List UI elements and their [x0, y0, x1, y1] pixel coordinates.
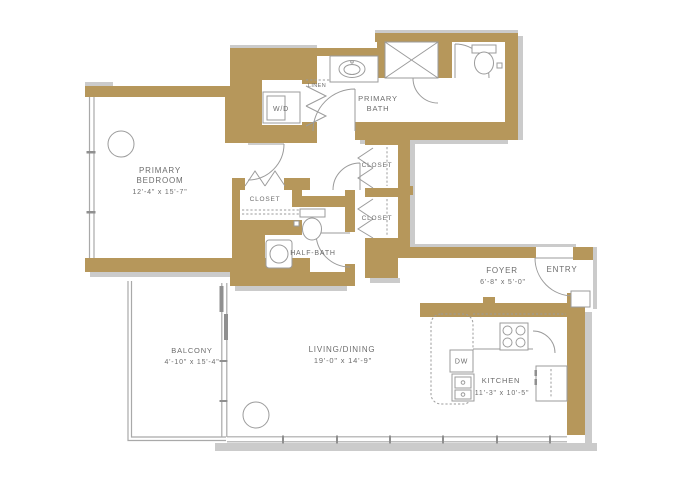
shadow [85, 82, 113, 86]
bedroom-closet-label: CLOSET [250, 196, 281, 203]
wall-bedroom-top [85, 86, 238, 97]
window-mullion [87, 151, 96, 154]
walls [85, 33, 593, 435]
wall-kitchen-right [567, 293, 585, 435]
kitchen-sink-basin [455, 377, 471, 388]
halfbath-paper-holder [294, 221, 299, 226]
shadow [375, 30, 518, 33]
shadow [235, 286, 347, 291]
column [108, 131, 134, 157]
wall-hall-foyer [365, 250, 398, 278]
wall-below-closet [232, 220, 302, 235]
primary-bedroom-label-2: BEDROOM [137, 176, 184, 185]
bath-sink-basin [344, 65, 360, 75]
window-mullion [220, 360, 228, 362]
refrigerator-handle [535, 370, 538, 376]
shower-door-swing [413, 78, 438, 103]
wall-bath-right [505, 33, 518, 140]
primary-bath-label-1: PRIMARY [358, 94, 398, 103]
kitchen-dims: 11'-3" x 10'-5" [475, 390, 530, 397]
wall-entry-stub [573, 247, 593, 260]
foyer-label: FOYER [486, 266, 518, 275]
shadow [370, 278, 400, 283]
living-dining-dims: 19'-0" x 14'-9" [314, 356, 372, 365]
window-mullion [442, 436, 444, 444]
primary-bedroom-dims: 12'-4" x 15'-7" [132, 189, 187, 196]
shadow [398, 244, 576, 247]
entry-label: ENTRY [547, 265, 578, 274]
bath-door-swing [313, 89, 355, 131]
halfbath-sink-basin [270, 245, 288, 263]
balcony-label: BALCONY [171, 346, 212, 355]
lower-closet-label: CLOSET [362, 215, 393, 222]
wall-halfbath-left [232, 235, 265, 272]
living-dining-label: LIVING/DINING [309, 345, 376, 354]
shadow [230, 45, 317, 48]
bath-sink-faucet [351, 61, 354, 64]
halfbath-toilet-tank [300, 209, 325, 217]
entry-niche [571, 291, 590, 307]
wc-toilet-bowl [475, 52, 494, 74]
wall-halfbath-top [302, 196, 345, 207]
wall-linen-top [305, 48, 385, 56]
half-bath-label: HALF-BATH [290, 250, 336, 257]
balcony-door-panel [220, 286, 224, 312]
halfbath-toilet-bowl [303, 218, 322, 240]
floor-plan: PRIMARY BEDROOM 12'-4" x 15'-7" PRIMARY … [0, 0, 699, 491]
balcony-dims: 4'-10" x 15'-4" [164, 359, 219, 366]
refrigerator-handle [535, 379, 538, 385]
foyer-dims: 6'-8" x 5'-0" [480, 279, 526, 286]
kitchen-label: KITCHEN [482, 376, 521, 385]
bedroom-door-swing [248, 144, 284, 180]
window-mullion [336, 436, 338, 444]
window-mullion [220, 400, 228, 402]
window-mullion [87, 211, 96, 214]
wall-kitchen-tab [483, 297, 495, 303]
shadow [593, 247, 597, 309]
linen-label: LINEN [308, 83, 326, 89]
shadow [215, 443, 597, 451]
wc-paper-holder [497, 63, 502, 68]
bedroom-closet-bifold-door [245, 171, 285, 186]
wall-closet-toilet [292, 178, 302, 207]
column [243, 402, 269, 428]
wall-closet-left [232, 190, 240, 222]
wd-label: W/D [273, 106, 289, 113]
wall-halfbath-bottom [230, 272, 345, 286]
upper-closet-label: CLOSET [362, 162, 393, 169]
dishwasher-label: DW [455, 359, 468, 366]
living-south-window-wall [227, 437, 567, 442]
entry-door-swing [535, 258, 573, 296]
shadow [90, 272, 230, 277]
primary-bedroom-label-1: PRIMARY [139, 166, 181, 175]
wall-halfbath-right-upper [345, 190, 355, 232]
wall-kitchen-top [420, 303, 568, 317]
bedroom-closet-rod [242, 210, 300, 214]
wall-bath-top [375, 33, 518, 42]
wall-foyer-top [398, 247, 536, 258]
balcony-door-panel [224, 314, 228, 340]
window-mullion [549, 436, 551, 444]
primary-bath-label-2: BATH [367, 104, 390, 113]
shadow [585, 312, 592, 450]
bedroom-window-wall [90, 97, 95, 258]
shadow [518, 36, 523, 140]
window-mullion [389, 436, 391, 444]
hall-door-swing [333, 163, 360, 190]
wall-closets-mid [365, 188, 410, 197]
floor-plan-canvas: PRIMARY BEDROOM 12'-4" x 15'-7" PRIMARY … [0, 0, 699, 491]
kitchen-sink-basin [455, 390, 471, 399]
window-mullion [282, 436, 284, 444]
window-mullion [496, 436, 498, 444]
wall-closet-stub-left [232, 178, 245, 190]
wall-shower-wc [438, 42, 452, 78]
